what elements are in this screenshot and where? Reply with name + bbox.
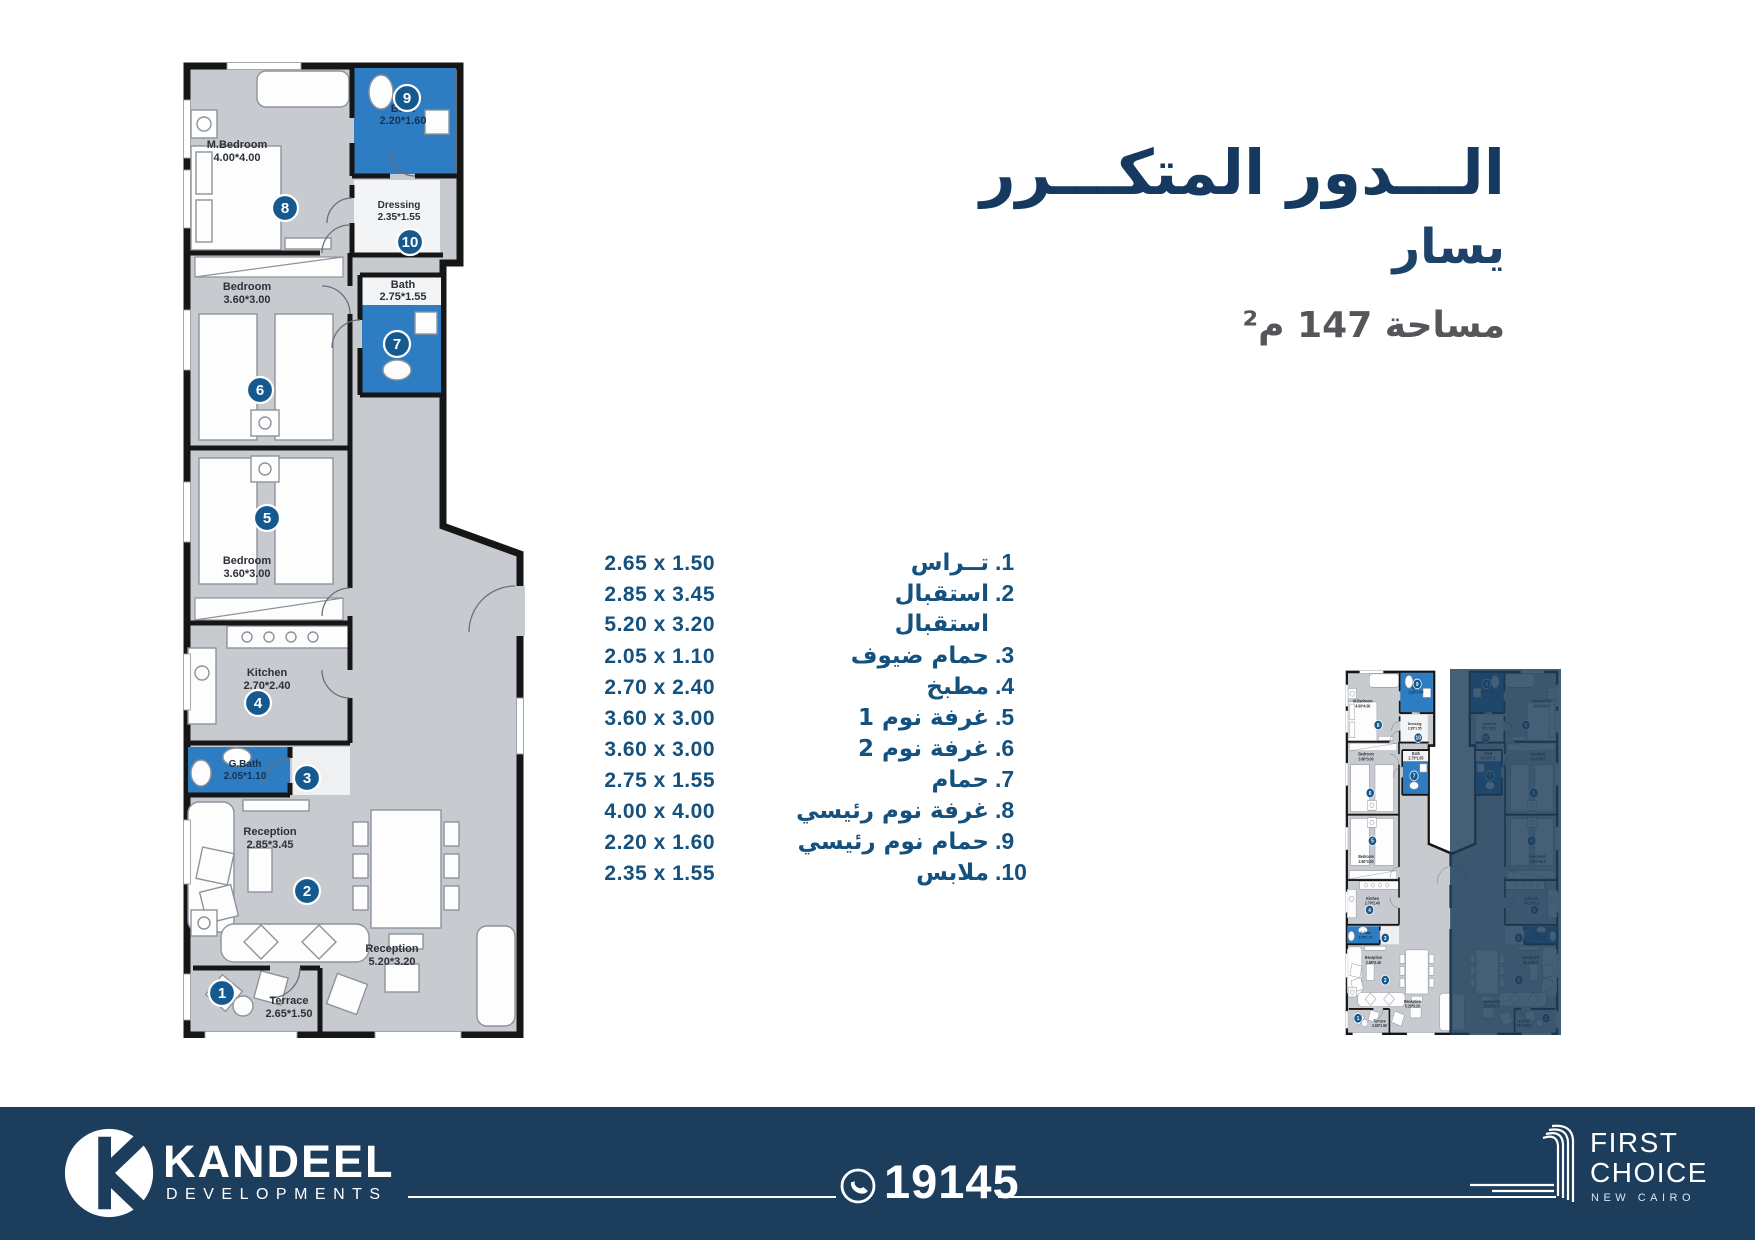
room-dimensions: 2.75 x 1.55 [595,769,715,793]
svg-text:5.20*3.20: 5.20*3.20 [368,956,415,968]
brochure-page: M.Bedroom 4.00*4.00 Bath 2.20*1.60 Dress… [0,0,1755,1240]
key-plan [1343,669,1561,1035]
svg-text:2.35*1.55: 2.35*1.55 [378,212,421,223]
room-number: 7. [995,766,1035,793]
room-name: غرفة نوم 2 [858,736,989,762]
room-name: تــراس [911,550,989,576]
svg-text:3: 3 [303,770,311,787]
svg-text:NEW CAIRO: NEW CAIRO [1591,1192,1695,1204]
room-dimensions: 3.60 x 3.00 [595,707,715,731]
label-kitchen: Kitchen [247,667,288,679]
room-list: 2.65 x 1.501.تــراس2.85 x 3.452.استقبال5… [595,549,1035,890]
room-name: غرفة نوم 1 [858,705,989,731]
room-list-row: 2.65 x 1.501.تــراس [595,549,1035,580]
area-label: مساحة 147 م² [885,305,1505,346]
room-dimensions: 2.05 x 1.10 [595,645,715,669]
room-number: 10. [995,859,1035,886]
svg-text:2.75*1.55: 2.75*1.55 [379,291,426,303]
room-name: استقبال [895,581,989,607]
svg-text:FIRST: FIRST [1590,1127,1678,1158]
room-list-row: 2.75 x 1.557.حمام [595,766,1035,797]
hotline-number: 19145 [884,1154,1020,1209]
room-list-row: 3.60 x 3.005.غرفة نوم 1 [595,704,1035,735]
room-dimensions: 2.35 x 1.55 [595,862,715,886]
label-dressing: Dressing [378,200,421,211]
brand-subtitle: DEVELOPMENTS [166,1186,388,1204]
key-plan-shade [1450,669,1561,1035]
room-number: 1. [995,549,1035,576]
label-terrace: Terrace [270,995,309,1007]
label-bath7: Bath [391,279,416,291]
room-list-row: 2.70 x 2.404.مطبخ [595,673,1035,704]
footer-divider-left [408,1196,836,1198]
label-bedroom5: Bedroom [223,555,272,567]
room-dimensions: 2.85 x 3.45 [595,583,715,607]
room-list-row: 2.05 x 1.103.حمام ضيوف [595,642,1035,673]
svg-text:4.00*4.00: 4.00*4.00 [213,152,260,164]
room-name: استقبال [895,611,989,637]
room-list-row: 2.35 x 1.5510.ملابس [595,859,1035,890]
svg-text:2.05*1.10: 2.05*1.10 [224,771,267,782]
svg-text:6: 6 [256,382,264,399]
room-name: ملابس [916,860,989,886]
room-name: غرفة نوم رئيسي [796,798,989,824]
svg-text:2.20*1.60: 2.20*1.60 [379,115,426,127]
room-dimensions: 5.20 x 3.20 [595,613,715,637]
svg-text:4: 4 [254,695,263,712]
label-reception2: Reception [243,826,296,838]
kandeel-logo-icon [62,1124,160,1222]
room-number: 4. [995,673,1035,700]
room-number: 9. [995,828,1035,855]
room-number: 2. [995,580,1035,607]
footer-bar: KANDEEL DEVELOPMENTS 19145 FIRST CHOICE … [0,1107,1755,1240]
svg-text:10: 10 [402,234,419,251]
first-choice-logo: FIRST CHOICE NEW CAIRO [1440,1118,1720,1218]
room-dimensions: 2.65 x 1.50 [595,552,715,576]
page-subtitle: يسار [885,219,1505,275]
room-number: 5. [995,704,1035,731]
room-list-row: 2.85 x 3.452.استقبال [595,580,1035,611]
svg-text:9: 9 [403,90,411,107]
key-plan-left-unit [1346,671,1456,1035]
svg-text:2.70*2.40: 2.70*2.40 [243,680,290,692]
svg-text:2: 2 [303,883,311,900]
brand-name: KANDEEL [163,1136,395,1188]
room-number: 3. [995,642,1035,669]
room-number: 8. [995,797,1035,824]
label-gbath: G.Bath [229,759,262,770]
label-reception-b: Reception [365,943,418,955]
room-dimensions: 2.20 x 1.60 [595,831,715,855]
title-block: الـــدور المتكـــرر يسار مساحة 147 م² [885,140,1505,346]
room-dimensions: 4.00 x 4.00 [595,800,715,824]
svg-text:2.65*1.50: 2.65*1.50 [265,1008,312,1020]
room-name: مطبخ [926,674,989,700]
room-name: حمام [932,767,990,793]
floor-plan-root: M.Bedroom 4.00*4.00 Bath 2.20*1.60 Dress… [184,63,526,1039]
room-name: حمام ضيوف [851,643,989,669]
svg-text:CHOICE: CHOICE [1590,1157,1708,1188]
room-list-row: 2.20 x 1.609.حمام نوم رئيسي [595,828,1035,859]
room-list-row: 3.60 x 3.006.غرفة نوم 2 [595,735,1035,766]
label-m-bedroom: M.Bedroom [207,139,268,151]
room-list-row: 4.00 x 4.008.غرفة نوم رئيسي [595,797,1035,828]
svg-text:8: 8 [281,200,289,217]
svg-text:3.60*3.00: 3.60*3.00 [223,294,270,306]
label-bedroom6: Bedroom [223,281,272,293]
svg-text:3.60*3.00: 3.60*3.00 [223,568,270,580]
svg-text:2.85*3.45: 2.85*3.45 [246,839,293,851]
page-title: الـــدور المتكـــرر [885,140,1505,205]
svg-text:7: 7 [393,336,401,353]
floor-plan: M.Bedroom 4.00*4.00 Bath 2.20*1.60 Dress… [175,58,525,1038]
svg-text:1: 1 [218,985,226,1002]
room-name: حمام نوم رئيسي [798,829,989,855]
room-dimensions: 2.70 x 2.40 [595,676,715,700]
room-number: 6. [995,735,1035,762]
first-choice-one-icon [1470,1126,1573,1202]
phone-icon [838,1166,878,1206]
svg-text:5: 5 [263,510,271,527]
room-dimensions: 3.60 x 3.00 [595,738,715,762]
room-list-row: 5.20 x 3.20استقبال [595,611,1035,642]
